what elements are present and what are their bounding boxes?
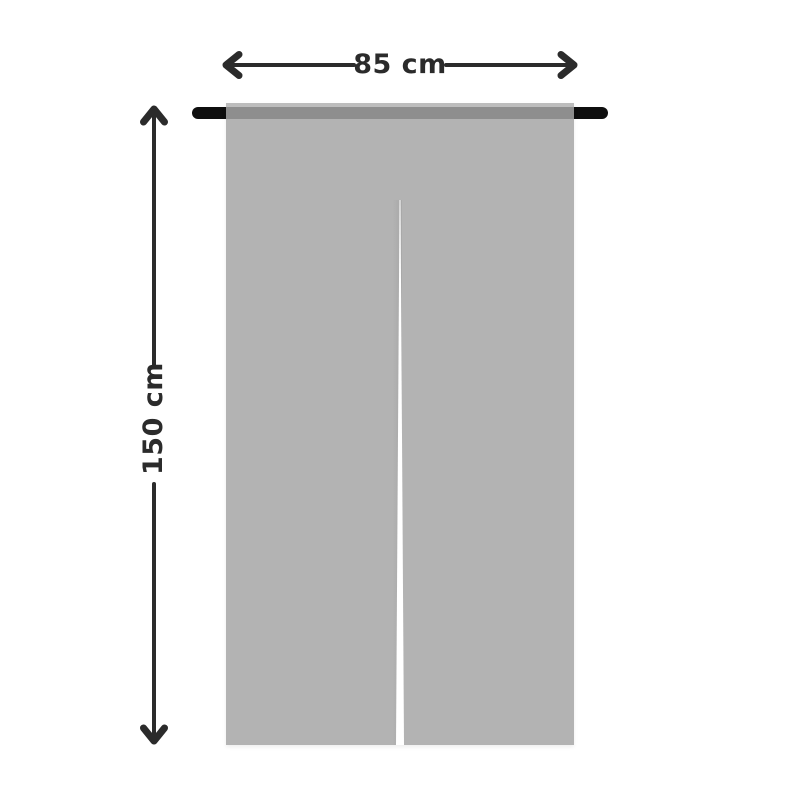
arrowhead-left-icon xyxy=(226,55,239,76)
height-dimension-label: 150 cm xyxy=(137,375,171,475)
rod-seen-through-fabric xyxy=(226,107,574,119)
arrowhead-up-icon xyxy=(144,109,165,122)
noren-curtain xyxy=(226,103,574,745)
dimension-diagram: 85 cm 150 cm xyxy=(0,0,800,800)
arrowhead-down-icon xyxy=(144,728,165,741)
width-dimension-label: 85 cm xyxy=(300,48,500,82)
arrowhead-right-icon xyxy=(561,55,574,76)
